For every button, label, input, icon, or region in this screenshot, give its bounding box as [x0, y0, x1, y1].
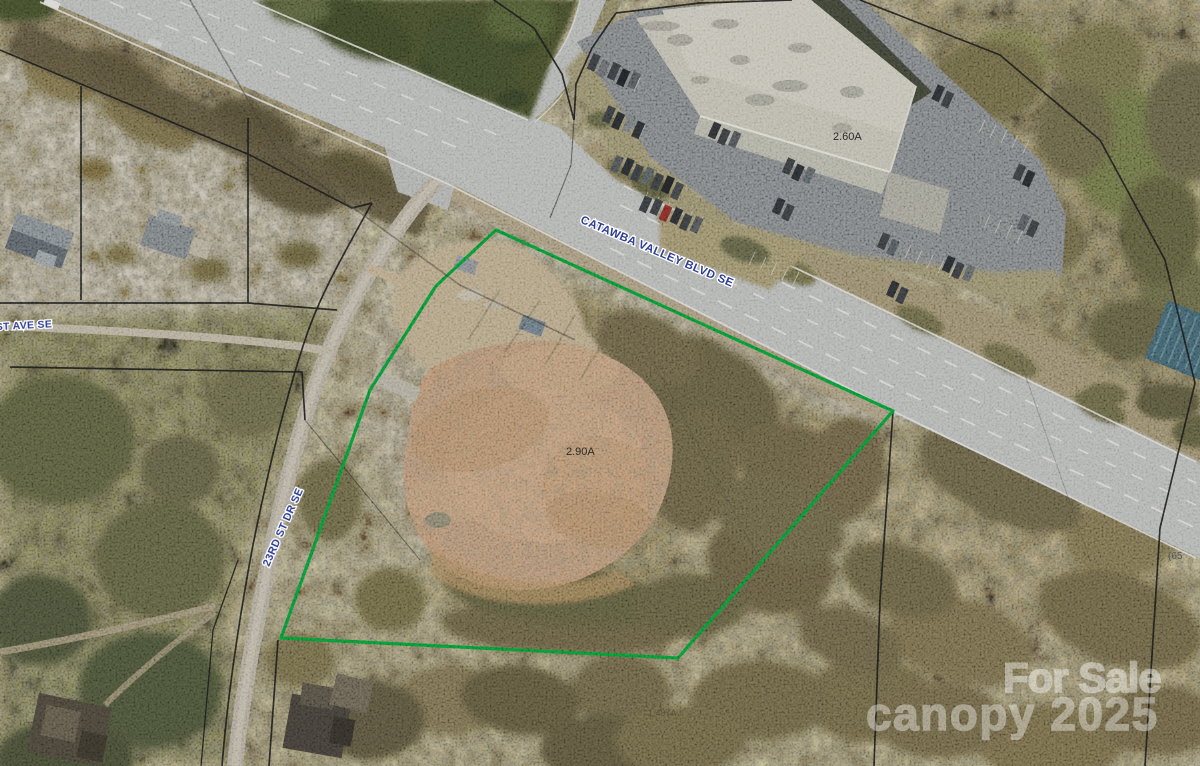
svg-text:canopy 2025: canopy 2025	[866, 688, 1159, 740]
svg-text:2.90A: 2.90A	[566, 446, 595, 458]
svg-text:1.497A: 1.497A	[648, 708, 677, 718]
svg-text:(65: (65	[1168, 551, 1183, 562]
svg-text:2.60A: 2.60A	[833, 131, 862, 143]
